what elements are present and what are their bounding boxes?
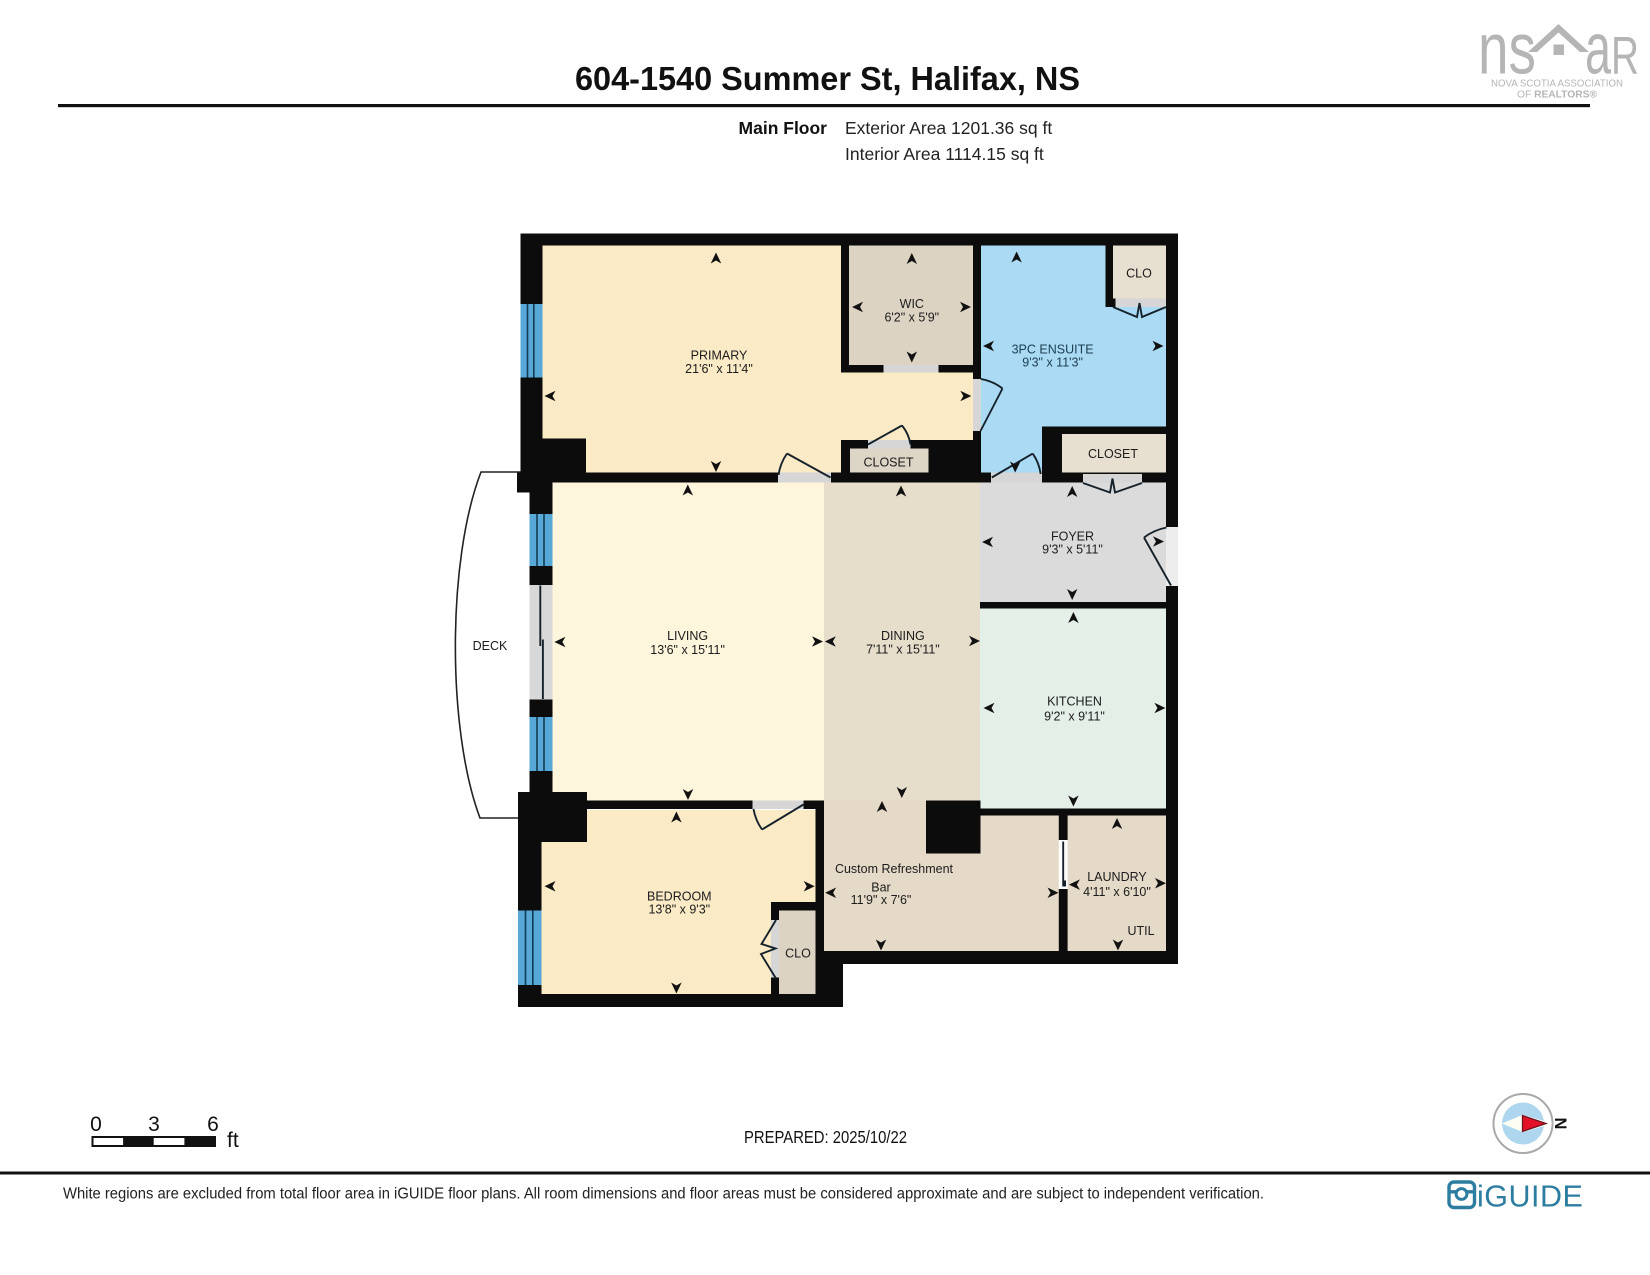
svg-text:0: 0 — [90, 1113, 102, 1136]
svg-text:9'2" x 9'11": 9'2" x 9'11" — [1044, 710, 1105, 724]
svg-text:13'8" x 9'3": 13'8" x 9'3" — [648, 903, 710, 917]
svg-text:4'11" x 6'10": 4'11" x 6'10" — [1083, 885, 1151, 899]
svg-text:WIC: WIC — [900, 297, 924, 311]
svg-text:Custom Refreshment: Custom Refreshment — [835, 862, 954, 876]
svg-text:Interior Area 1114.15 sq ft: Interior Area 1114.15 sq ft — [845, 144, 1044, 164]
svg-text:N: N — [1551, 1118, 1569, 1130]
svg-text:CLO: CLO — [785, 947, 811, 961]
svg-text:13'6" x 15'11": 13'6" x 15'11" — [650, 643, 725, 657]
svg-text:iGUIDE: iGUIDE — [1477, 1180, 1583, 1214]
svg-text:DINING: DINING — [881, 629, 925, 643]
svg-text:6: 6 — [207, 1113, 219, 1136]
svg-text:LAUNDRY: LAUNDRY — [1087, 870, 1147, 884]
svg-text:ft: ft — [227, 1129, 239, 1152]
svg-text:White regions are excluded fro: White regions are excluded from total fl… — [63, 1186, 1264, 1203]
svg-text:9'3" x 11'3": 9'3" x 11'3" — [1022, 356, 1083, 370]
svg-text:Main Floor: Main Floor — [739, 118, 828, 138]
svg-text:UTIL: UTIL — [1127, 924, 1154, 938]
svg-text:Exterior Area 1201.36 sq ft: Exterior Area 1201.36 sq ft — [845, 118, 1052, 138]
svg-text:7'11" x 15'11": 7'11" x 15'11" — [866, 643, 940, 657]
svg-text:FOYER: FOYER — [1051, 530, 1094, 544]
svg-text:3: 3 — [148, 1113, 160, 1136]
svg-text:CLOSET: CLOSET — [863, 456, 913, 470]
svg-text:KITCHEN: KITCHEN — [1047, 695, 1102, 709]
svg-text:PRIMARY: PRIMARY — [691, 349, 748, 363]
svg-text:BEDROOM: BEDROOM — [647, 890, 712, 904]
svg-text:6'2" x 5'9": 6'2" x 5'9" — [884, 311, 939, 325]
svg-text:9'3" x 5'11": 9'3" x 5'11" — [1042, 543, 1103, 557]
svg-text:OF REALTORS®: OF REALTORS® — [1517, 89, 1597, 101]
svg-text:PREPARED: 2025/10/22: PREPARED: 2025/10/22 — [744, 1127, 907, 1147]
svg-text:DECK: DECK — [473, 639, 508, 653]
svg-text:LIVING: LIVING — [667, 629, 708, 643]
svg-text:CLOSET: CLOSET — [1088, 447, 1138, 461]
svg-text:CLO: CLO — [1126, 267, 1152, 281]
svg-text:3PC ENSUITE: 3PC ENSUITE — [1012, 343, 1094, 357]
svg-text:604-1540 Summer St, Halifax, N: 604-1540 Summer St, Halifax, NS — [575, 60, 1080, 97]
svg-text:11'9" x 7'6": 11'9" x 7'6" — [851, 893, 912, 907]
svg-text:21'6" x 11'4": 21'6" x 11'4" — [685, 362, 753, 376]
